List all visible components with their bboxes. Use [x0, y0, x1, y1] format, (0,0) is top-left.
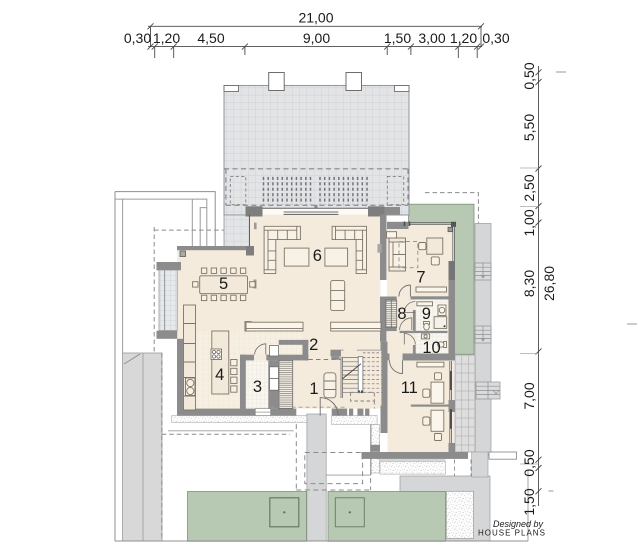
- svg-text:1,00: 1,00: [521, 209, 537, 236]
- svg-text:1,50: 1,50: [521, 488, 537, 515]
- svg-text:11: 11: [401, 379, 418, 397]
- svg-text:1: 1: [309, 380, 318, 398]
- svg-text:0,50: 0,50: [521, 449, 537, 476]
- svg-text:7,00: 7,00: [521, 382, 537, 409]
- svg-text:8,30: 8,30: [521, 270, 537, 297]
- svg-text:7: 7: [416, 269, 425, 287]
- svg-text:2,50: 2,50: [521, 174, 537, 201]
- svg-text:4,50: 4,50: [197, 30, 224, 46]
- svg-text:2: 2: [309, 336, 318, 354]
- svg-text:8: 8: [397, 305, 406, 323]
- svg-text:21,00: 21,00: [298, 10, 333, 26]
- svg-text:HOUSE PLANS: HOUSE PLANS: [478, 529, 546, 538]
- svg-text:26,80: 26,80: [541, 266, 557, 301]
- svg-text:0,30: 0,30: [482, 30, 509, 46]
- svg-text:Designed by: Designed by: [493, 519, 544, 529]
- svg-text:1,20: 1,20: [450, 30, 477, 46]
- svg-text:10: 10: [422, 339, 440, 357]
- svg-text:4: 4: [215, 366, 224, 384]
- svg-text:1,50: 1,50: [384, 30, 411, 46]
- svg-text:0,30: 0,30: [124, 30, 151, 46]
- svg-text:1,20: 1,20: [153, 30, 180, 46]
- svg-text:0,50: 0,50: [521, 62, 537, 89]
- svg-text:9,00: 9,00: [303, 30, 330, 46]
- svg-text:6: 6: [313, 247, 322, 265]
- svg-text:9: 9: [422, 305, 431, 323]
- svg-text:3: 3: [253, 378, 262, 396]
- svg-text:5,50: 5,50: [521, 114, 537, 141]
- svg-text:5: 5: [219, 275, 228, 293]
- svg-text:3,00: 3,00: [418, 30, 445, 46]
